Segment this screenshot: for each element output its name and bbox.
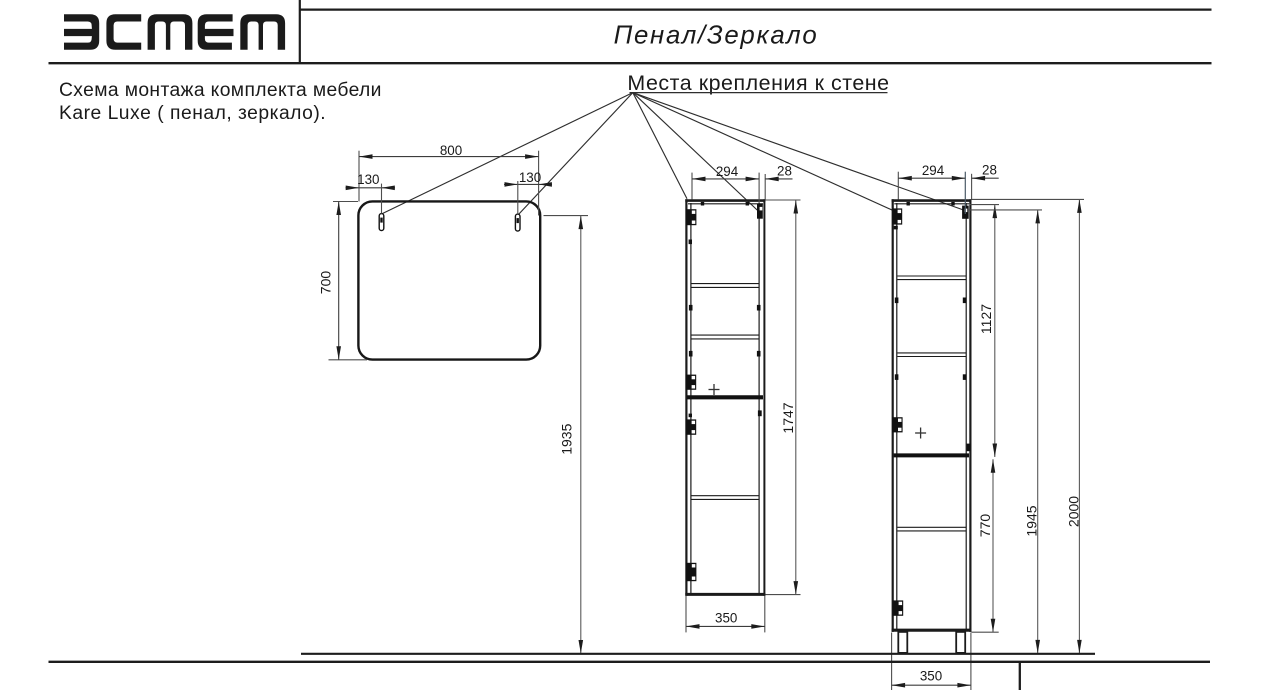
svg-text:350: 350 [920,669,942,684]
svg-text:Kare Luxe ( пенал, зеркало).: Kare Luxe ( пенал, зеркало). [59,103,326,124]
svg-text:800: 800 [440,143,462,158]
svg-text:1747: 1747 [780,402,796,433]
svg-text:294: 294 [716,164,739,179]
svg-text:Схема монтажа комплекта мебели: Схема монтажа комплекта мебели [59,80,382,101]
svg-text:Места крепления к стене: Места крепления к стене [627,71,889,95]
svg-text:1127: 1127 [978,304,994,334]
svg-text:1945: 1945 [1023,505,1039,536]
svg-text:130: 130 [357,172,379,187]
svg-text:28: 28 [777,163,792,178]
svg-text:294: 294 [922,163,945,178]
svg-text:2000: 2000 [1066,496,1082,527]
svg-text:350: 350 [715,610,737,625]
svg-text:770: 770 [977,514,993,538]
svg-text:Пенал/Зеркало: Пенал/Зеркало [614,22,819,50]
svg-text:700: 700 [317,271,333,295]
svg-text:28: 28 [982,163,997,178]
svg-text:1935: 1935 [559,423,575,454]
svg-text:130: 130 [519,170,541,185]
